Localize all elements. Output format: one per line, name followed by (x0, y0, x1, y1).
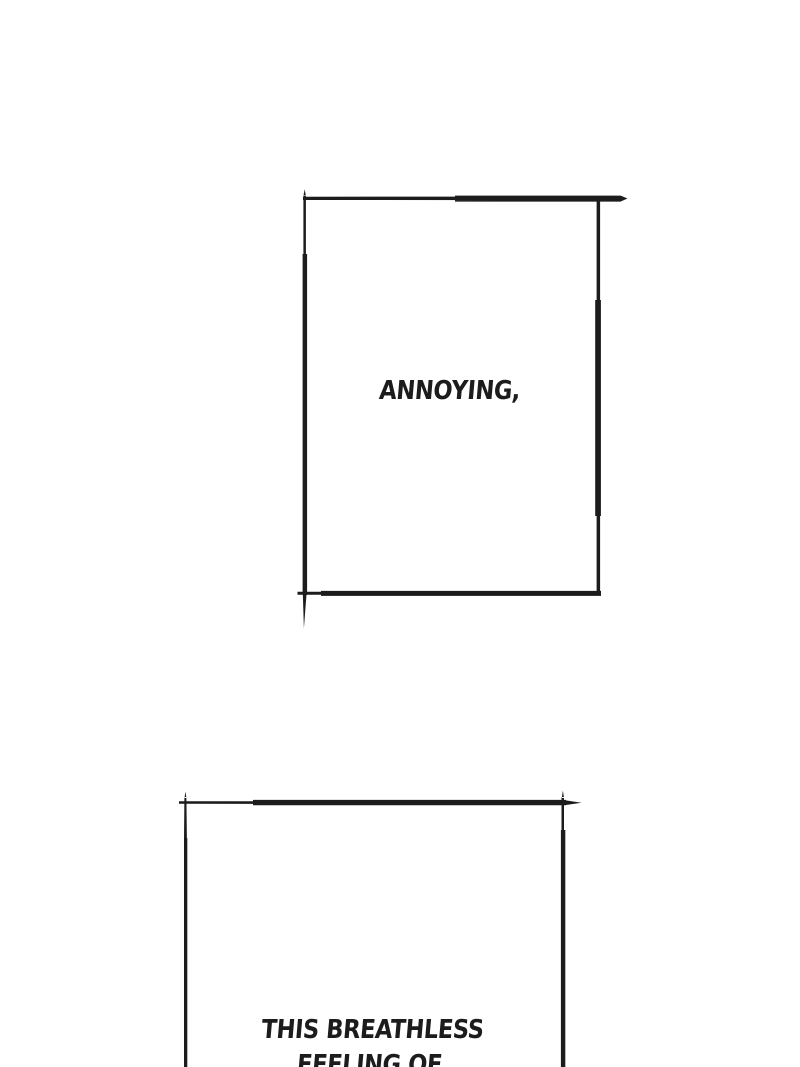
panel-1-frame (298, 189, 628, 628)
panel-frames (0, 0, 800, 1067)
panel-2-border-right (561, 791, 565, 1067)
panel-1-dialogue: ANNOYING, (320, 376, 580, 406)
panel-2-border-left (184, 792, 187, 1067)
comic-page: ANNOYING, THIS BREATHLESS FEELING OF (0, 0, 800, 1067)
panel-1-border-bottom (298, 591, 602, 596)
panel-2-dialogue-line-1: THIS BREATHLESS (207, 1013, 539, 1048)
panel-2-dialogue: THIS BREATHLESS FEELING OF (203, 1013, 538, 1067)
panel-2-dialogue-line-2: FEELING OF (203, 1048, 535, 1067)
panel-1-border-left (303, 189, 308, 628)
panel-1-border-top (303, 196, 628, 202)
panel-2-border-top (179, 800, 582, 805)
panel-1-border-right (595, 199, 601, 595)
